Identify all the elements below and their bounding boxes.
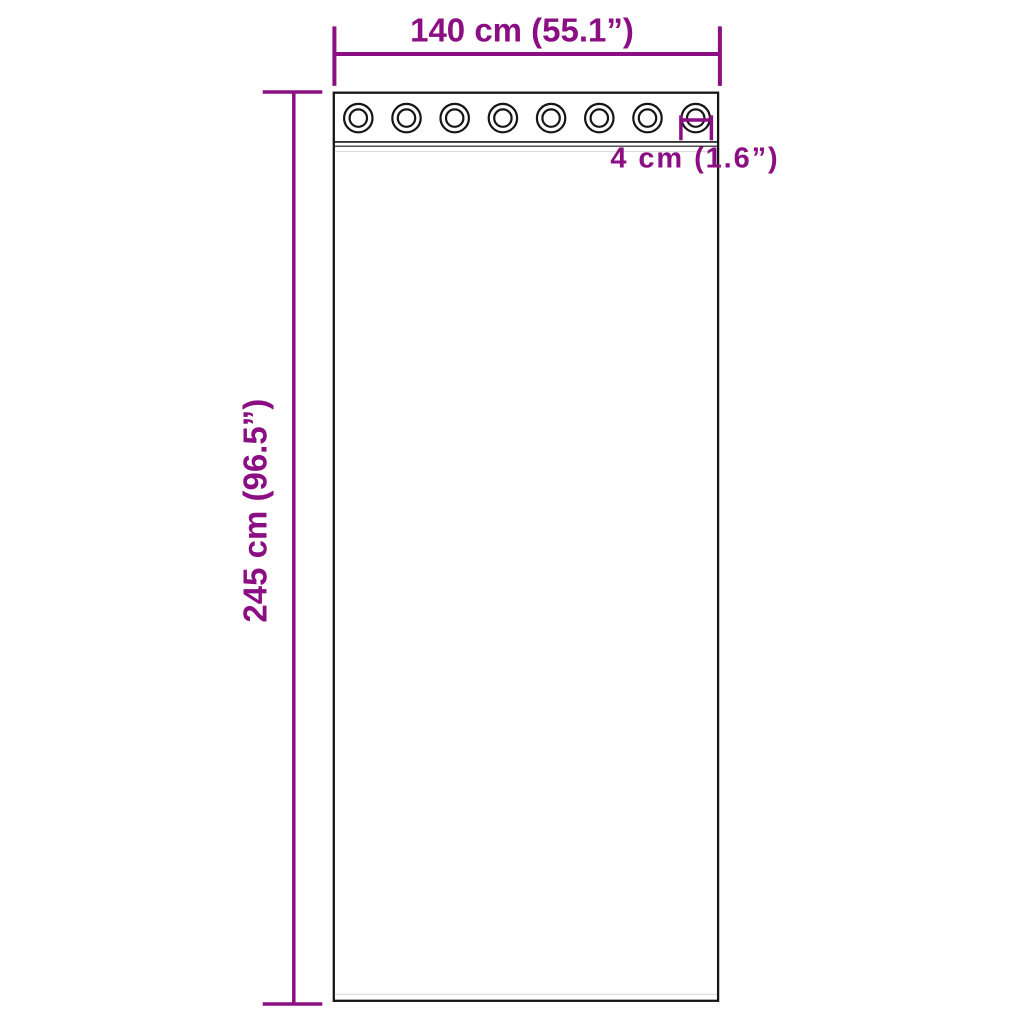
svg-text:245 cm (96.5”): 245 cm (96.5”): [237, 399, 274, 623]
svg-text:4 cm (1.6”): 4 cm (1.6”): [610, 142, 779, 174]
svg-text:140 cm (55.1”): 140 cm (55.1”): [410, 12, 634, 49]
